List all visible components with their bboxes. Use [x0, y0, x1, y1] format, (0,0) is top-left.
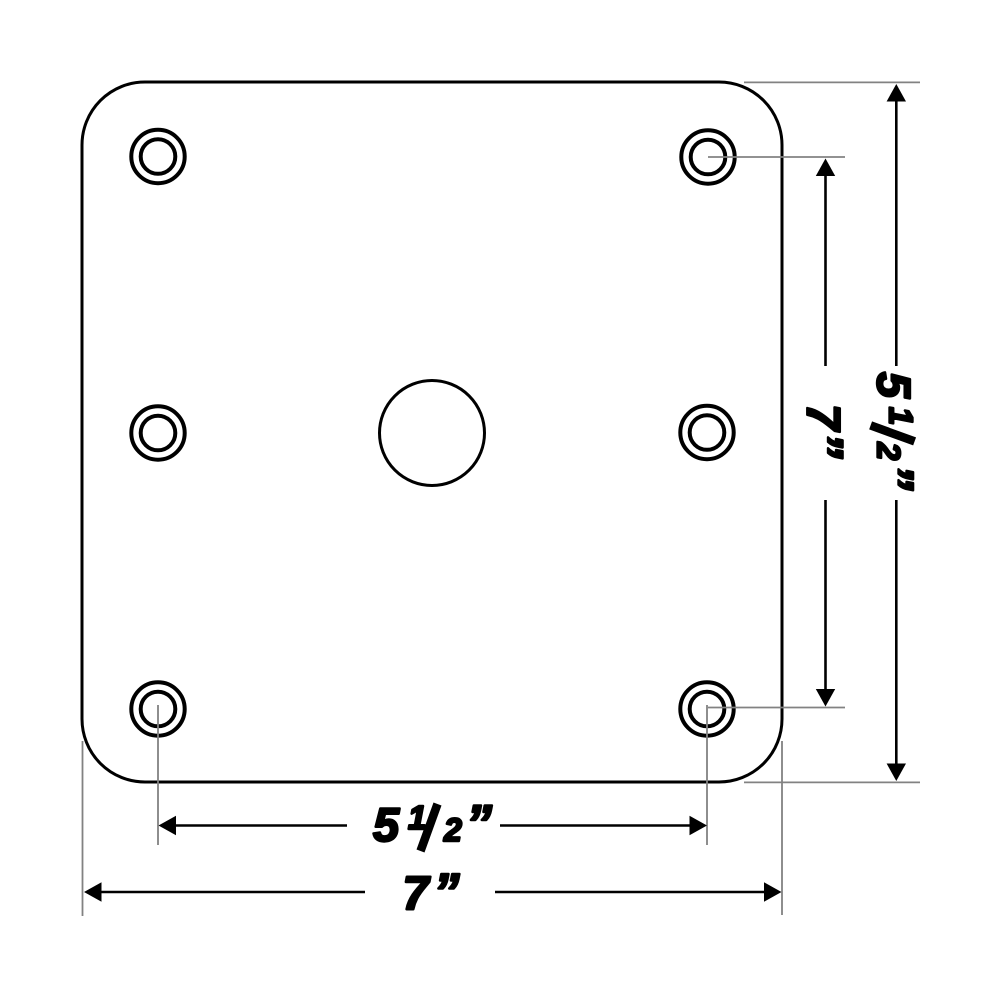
svg-text:7: 7: [403, 867, 431, 920]
svg-text:5: 5: [373, 798, 400, 851]
svg-text:2: 2: [443, 812, 462, 848]
svg-text:”: ”: [466, 795, 492, 853]
svg-text:”: ”: [866, 464, 924, 490]
svg-text:1: 1: [883, 407, 920, 425]
svg-text:”: ”: [434, 864, 460, 922]
svg-text:7: 7: [797, 404, 850, 432]
svg-text:2: 2: [871, 441, 907, 460]
svg-text:5: 5: [868, 372, 921, 399]
svg-text:”: ”: [795, 433, 853, 459]
